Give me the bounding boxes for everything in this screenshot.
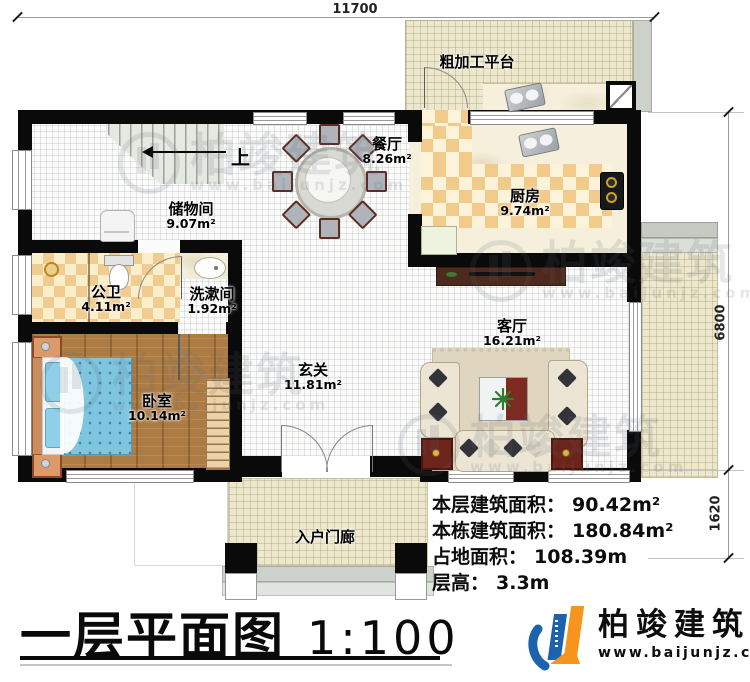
dimension-top-value: 11700	[315, 2, 395, 17]
watermark-logo-icon	[118, 132, 180, 194]
sofa-pillow	[557, 368, 577, 388]
company-name: 柏竣建筑	[598, 608, 750, 642]
burner	[606, 177, 617, 188]
plant-icon	[492, 388, 514, 410]
bedroom-window	[12, 342, 32, 456]
watermark-logo-icon	[470, 240, 532, 302]
watermark: 柏竣建筑www.baijunjz.com	[40, 352, 329, 414]
kitchen-window	[470, 111, 594, 125]
kitchen-door-opening	[422, 110, 468, 126]
room-label-washroom: 洗漱间1.92m²	[187, 286, 236, 316]
dimension-right-lower-value: 1620	[709, 484, 724, 544]
sink-basin	[539, 133, 554, 146]
watermark: 柏竣建筑www.baijunjz.com	[470, 240, 750, 302]
knob	[41, 342, 50, 351]
sink-basin	[525, 88, 540, 101]
room-label-platform: 粗加工平台	[439, 54, 514, 70]
company-url: www.baijunjz.com	[598, 645, 750, 661]
watermark: 柏竣建筑www.baijunjz.com	[398, 414, 687, 476]
bath-door-opening	[138, 240, 180, 253]
wall	[18, 322, 178, 334]
burner	[606, 192, 617, 203]
basin-drain	[214, 266, 218, 270]
porch-side-pad	[134, 478, 228, 566]
floor-plan-canvas: 11700 上	[0, 0, 750, 682]
bedroom-window	[66, 470, 194, 483]
room-label-porch: 入户门廊	[295, 529, 355, 545]
dining-chair	[319, 218, 340, 239]
porch-pillar	[395, 543, 427, 573]
watermark-logo-icon	[398, 414, 460, 476]
nightstand	[32, 453, 62, 478]
wash-basin	[194, 257, 226, 279]
porch-pillar	[225, 543, 257, 573]
fridge	[421, 226, 457, 255]
wall	[240, 456, 282, 477]
sink-basin	[523, 137, 538, 150]
shower-head	[44, 262, 59, 277]
room-label-kitchen: 厨房9.74m²	[500, 188, 549, 218]
company-logo-icon	[528, 600, 592, 672]
window	[12, 255, 32, 315]
stat-total-area: 本栋建筑面积：180.84m²	[432, 518, 673, 544]
sofa-pillow	[428, 368, 448, 388]
watermark: 柏竣建筑www.baijunjz.com	[118, 132, 407, 194]
room-label-storage: 储物间9.07m²	[166, 201, 215, 231]
title-underline-shadow	[20, 664, 452, 666]
dimension-line-top	[18, 17, 655, 18]
washer-panel	[104, 231, 129, 233]
stat-floor-height: 层高：3.3m	[432, 570, 673, 596]
company-logo-text: 柏竣建筑 www.baijunjz.com	[598, 608, 750, 661]
title-underline	[20, 656, 440, 660]
stats-block: 本层建筑面积：90.42m² 本栋建筑面积：180.84m² 占地面积：108.…	[432, 492, 673, 596]
watermark-logo-icon	[40, 352, 102, 414]
stat-land-area: 占地面积：108.39m	[432, 544, 673, 570]
window	[343, 112, 395, 125]
knob	[41, 459, 50, 468]
platform-corner-door	[606, 81, 636, 112]
stat-floor-area: 本层建筑面积：90.42m²	[432, 492, 673, 518]
window	[12, 150, 32, 210]
kitchen-floor-tile	[420, 126, 472, 166]
room-label-living: 客厅16.21m²	[483, 318, 541, 348]
washing-machine	[100, 210, 135, 242]
plant-decor	[446, 272, 457, 277]
sink-basin	[509, 92, 524, 105]
stove	[600, 172, 624, 210]
window	[253, 112, 307, 125]
room-label-public-bath: 公卫4.11m²	[81, 284, 130, 314]
